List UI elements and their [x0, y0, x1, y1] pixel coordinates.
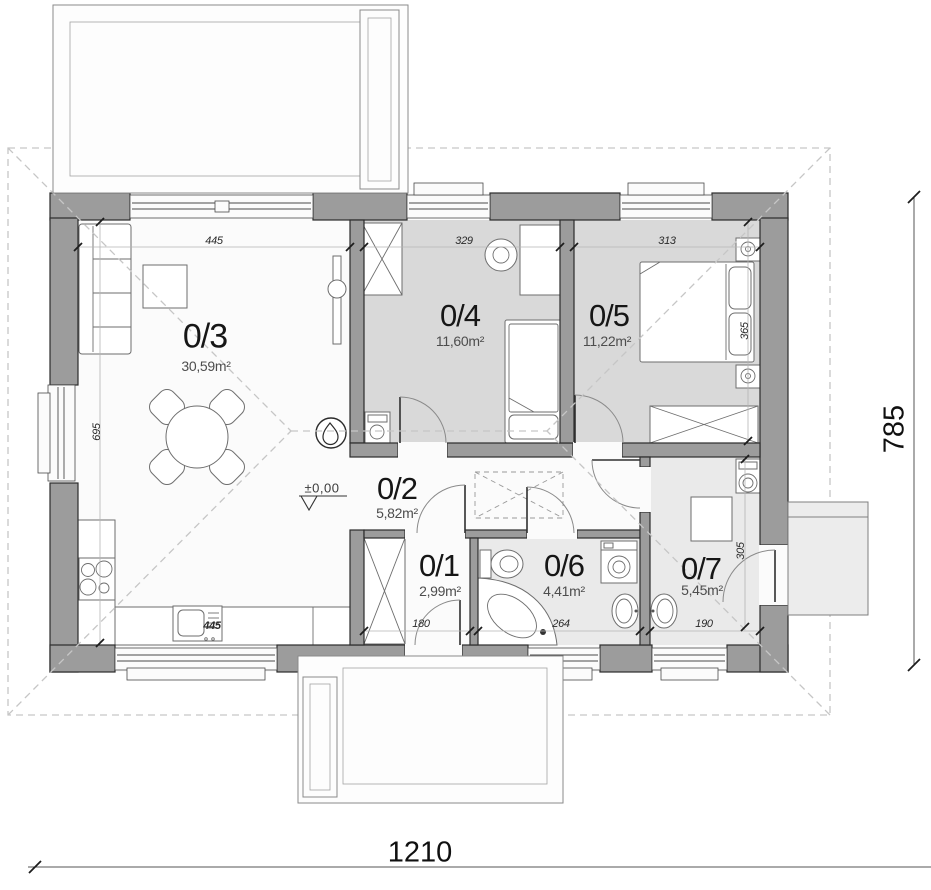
sink: [651, 594, 677, 628]
window: [407, 183, 490, 218]
appliance: [365, 412, 390, 443]
room-label-0-4: 0/4: [440, 298, 480, 334]
room-label-0-2: 0/2: [377, 471, 417, 507]
dim-room07-width: 190: [695, 618, 712, 630]
coffee-table: [143, 265, 187, 308]
wardrobe: [362, 223, 402, 295]
water-heater: [736, 459, 761, 493]
dim-overall-height: 785: [879, 405, 912, 453]
level-marker-label: ±0,00: [305, 481, 340, 496]
desk-chair: [485, 239, 517, 271]
room-area-0-7: 5,45m²: [681, 582, 723, 598]
wardrobe: [650, 406, 758, 443]
planter: [303, 677, 337, 797]
kitchen-counter-bottom: [115, 607, 350, 645]
dim-kitchen-counter: 445: [203, 620, 220, 632]
room-area-0-2: 5,82m²: [376, 505, 418, 521]
dim-room05-height: 365: [739, 322, 751, 339]
dim-room05-width: 313: [658, 235, 675, 247]
room-label-0-3: 0/3: [183, 318, 227, 357]
room-area-0-5: 11,22m²: [583, 333, 631, 349]
room-area-0-3: 30,59m²: [181, 358, 230, 374]
fireplace: [316, 418, 346, 448]
wardrobe: [364, 538, 405, 644]
sink: [612, 594, 638, 628]
floor-plan: 0/3 30,59m² 0/4 11,60m² 0/5 11,22m² 0/2 …: [0, 0, 931, 890]
window: [652, 648, 727, 680]
dim-overall-width: 1210: [388, 837, 453, 870]
floor-plan-drawing: [0, 0, 931, 890]
room-area-0-4: 11,60m²: [436, 333, 484, 349]
table: [691, 497, 732, 541]
window: [620, 183, 712, 218]
room-area-0-1: 2,99m²: [419, 583, 461, 599]
terrace-top: [53, 5, 408, 193]
dim-room06-width: 264: [552, 618, 569, 630]
desk: [520, 225, 562, 295]
dim-living-height: 695: [91, 423, 103, 440]
double-bed: [640, 262, 754, 362]
terrace-bottom: [298, 656, 563, 803]
room-label-0-5: 0/5: [589, 298, 629, 334]
dim-living-width: 445: [205, 235, 222, 247]
dim-room07-height: 305: [735, 542, 747, 559]
dim-room01-width: 180: [412, 618, 429, 630]
washing-machine: [601, 541, 637, 583]
window: [38, 385, 75, 481]
room-label-0-6: 0/6: [544, 548, 584, 584]
sofa: [79, 224, 131, 354]
single-bed: [505, 320, 562, 443]
window: [115, 648, 277, 680]
planter: [360, 10, 399, 189]
room-area-0-6: 4,41m²: [543, 583, 585, 599]
side-porch: [788, 502, 868, 615]
sliding-door: [130, 195, 313, 218]
room-label-0-1: 0/1: [419, 548, 459, 584]
toilet: [480, 550, 523, 578]
dim-room04-width: 329: [455, 235, 472, 247]
